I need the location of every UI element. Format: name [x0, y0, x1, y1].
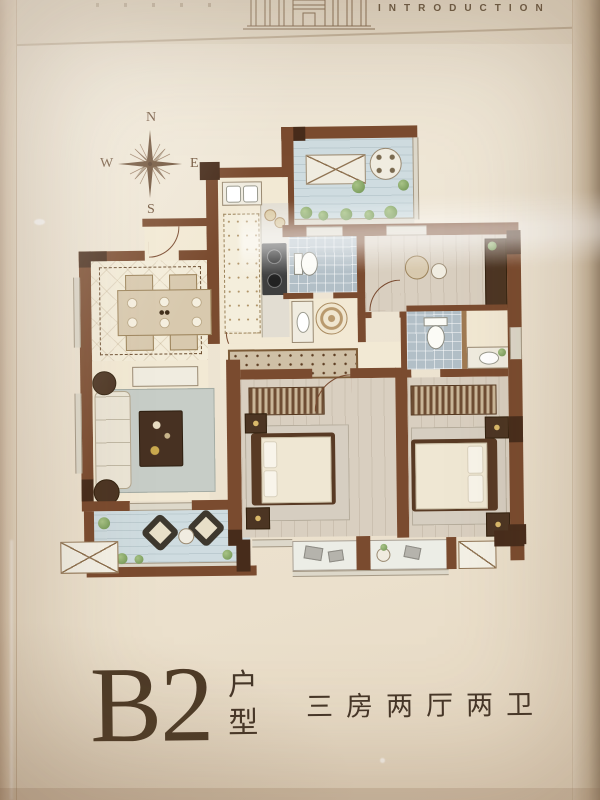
wall-column [446, 537, 456, 569]
vanity-sink [296, 312, 309, 333]
wall-segment [218, 167, 288, 178]
photo-of-floorplan-board: INTRODUCTION N W E S [0, 0, 600, 800]
wall-column [509, 416, 523, 442]
plant-icon [398, 180, 409, 191]
terrace-round-table [369, 148, 401, 180]
seat-pillow [303, 545, 323, 561]
window [306, 226, 342, 236]
ac-platform [60, 541, 118, 574]
floor-medallion [315, 302, 347, 334]
plant-icon [488, 241, 497, 250]
coffee-table [139, 410, 184, 467]
header-title: INTRODUCTION [378, 3, 551, 14]
cooktop [262, 243, 288, 295]
wall-segment [82, 501, 130, 512]
wall-segment [400, 312, 407, 370]
window [252, 539, 292, 547]
wall-segment [350, 368, 396, 379]
pillow [467, 475, 483, 503]
faded-text-marks [180, 3, 183, 7]
ac-platform [458, 540, 496, 568]
plant-icon [134, 555, 143, 564]
kitchen-sink [222, 181, 262, 205]
layout-description: 三房两厅两卫 [306, 682, 546, 724]
window [510, 327, 522, 359]
balcony-table [178, 528, 194, 544]
plant-icon [364, 210, 374, 220]
plant-icon [340, 208, 352, 220]
wall-column [200, 162, 220, 180]
terrace-window [412, 137, 419, 219]
side-table [92, 371, 116, 395]
sink-basin [243, 185, 258, 202]
vanity-sink [479, 351, 499, 364]
light-reflection-dot [380, 758, 385, 763]
pillow [467, 446, 483, 474]
frame-edge-right [572, 0, 600, 800]
plant-icon [352, 180, 365, 193]
pillow [263, 441, 277, 468]
wall-column [236, 539, 250, 571]
board-bottom-edge [0, 788, 600, 800]
unit-type-char-bottom: 型 [228, 709, 258, 739]
window [386, 225, 426, 235]
window [293, 569, 449, 577]
vanity-counter [291, 301, 314, 343]
plant-icon [380, 544, 387, 551]
study-chair [405, 255, 429, 279]
kitchen-runner [223, 213, 260, 333]
wardrobe [248, 387, 324, 416]
light-reflection-dot [34, 219, 45, 225]
study-side-table [431, 263, 447, 279]
title-divider [284, 656, 285, 752]
wall-column [356, 536, 370, 570]
sofa [94, 391, 131, 489]
building-facade-icon [243, 0, 375, 31]
tv-sideboard [132, 366, 198, 387]
plant-icon [300, 207, 312, 219]
toilet-bowl [301, 252, 318, 276]
compass-north-label: N [146, 110, 156, 126]
wall-column [494, 530, 524, 546]
wall-column [506, 230, 520, 254]
nightstand [246, 507, 270, 529]
window [74, 394, 82, 474]
wardrobe [410, 384, 496, 415]
plant-icon [318, 211, 328, 221]
unit-type-char-top: 户 [228, 671, 258, 701]
dining-table [117, 289, 212, 336]
chair-cushion [195, 517, 218, 540]
wall-segment [365, 312, 371, 318]
window [73, 278, 81, 348]
faded-text-marks [208, 3, 211, 7]
unit-type-label: 户 型 [228, 671, 259, 739]
frame-highlight [10, 540, 13, 800]
faded-text-marks [152, 3, 155, 7]
unit-code: B2 [89, 655, 212, 756]
faded-text-marks [124, 3, 127, 7]
frame-edge-left [0, 0, 17, 800]
faded-text-marks [96, 3, 99, 7]
unit-title-block: B2 户 型 三房两厅两卫 [89, 643, 530, 766]
nightstand [245, 413, 267, 433]
plant-icon [222, 550, 232, 560]
toilet-bowl [427, 325, 445, 349]
floor-plan [55, 122, 525, 588]
pillow [263, 470, 277, 497]
chair-cushion [149, 521, 172, 544]
plant-icon [384, 206, 397, 219]
nightstand [485, 416, 509, 438]
wall-column [82, 479, 94, 501]
seat-pillow [328, 549, 344, 562]
plant-icon [498, 348, 506, 356]
plant-icon [98, 517, 110, 529]
wall-segment [179, 250, 211, 260]
sink-basin [226, 186, 241, 203]
wall-segment [506, 230, 524, 560]
